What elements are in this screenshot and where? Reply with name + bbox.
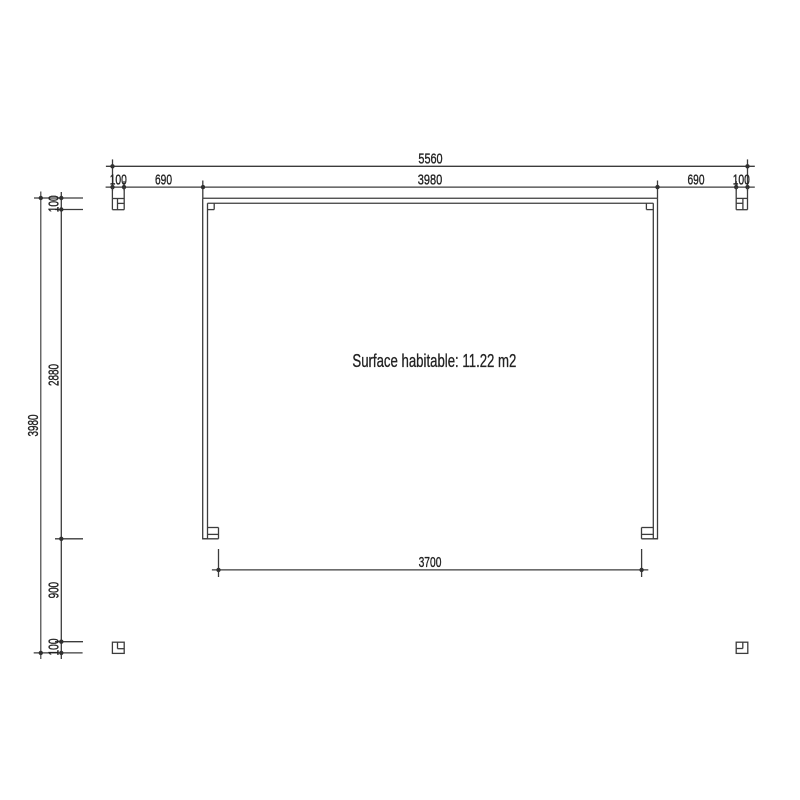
svg-text:100: 100	[110, 172, 127, 188]
svg-text:2880: 2880	[47, 364, 63, 386]
svg-text:690: 690	[688, 172, 705, 188]
svg-text:5560: 5560	[418, 152, 442, 168]
svg-text:3700: 3700	[419, 555, 442, 571]
svg-text:900: 900	[47, 582, 63, 598]
svg-text:100: 100	[733, 172, 750, 188]
svg-text:3980: 3980	[418, 172, 443, 188]
svg-text:690: 690	[155, 172, 172, 188]
svg-text:100: 100	[47, 195, 63, 212]
svg-text:100: 100	[47, 639, 63, 656]
svg-text:3980: 3980	[26, 415, 42, 437]
svg-text:Surface habitable: 11.22 m2: Surface habitable: 11.22 m2	[352, 351, 516, 371]
